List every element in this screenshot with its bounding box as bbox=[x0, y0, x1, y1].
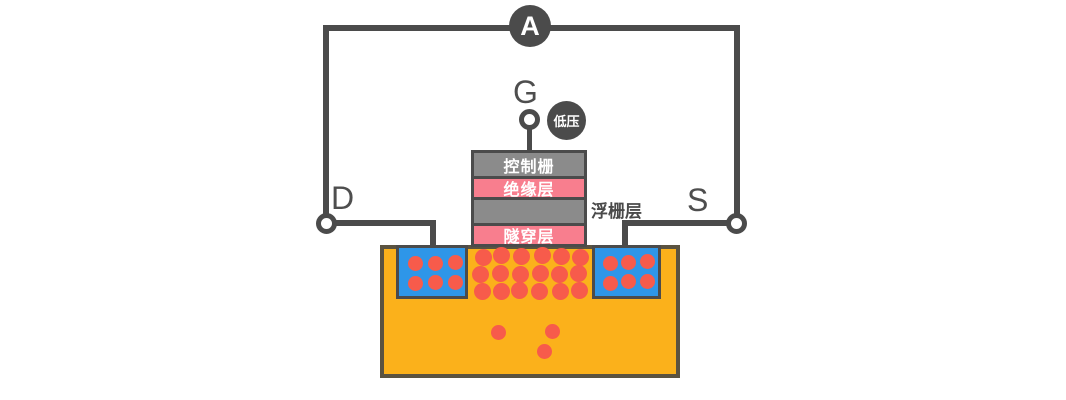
channel-electron bbox=[511, 282, 528, 299]
channel-electron bbox=[474, 283, 491, 300]
source-region-electron bbox=[603, 276, 618, 291]
channel-electron bbox=[553, 248, 570, 265]
channel-electron bbox=[571, 282, 588, 299]
source-region-electron bbox=[640, 254, 655, 269]
channel-electron bbox=[570, 265, 587, 282]
substrate-electron bbox=[491, 325, 506, 340]
channel-electron bbox=[492, 265, 509, 282]
drain-region bbox=[396, 245, 468, 299]
floating-gate-layer bbox=[474, 200, 584, 223]
substrate-electron bbox=[537, 344, 552, 359]
channel-electron bbox=[552, 283, 569, 300]
channel-electron bbox=[512, 266, 529, 283]
flash-memory-diagram: 控制栅 绝缘层 隧穿层 浮栅层 A 低压 G D S bbox=[0, 0, 1066, 400]
tunnel-layer: 隧穿层 bbox=[474, 226, 584, 244]
channel-electron bbox=[532, 265, 549, 282]
drain-region-electron bbox=[448, 275, 463, 290]
source-region-electron bbox=[603, 256, 618, 271]
insulation-layer: 绝缘层 bbox=[474, 179, 584, 197]
channel-electron bbox=[472, 266, 489, 283]
gate-terminal-label: G bbox=[513, 76, 538, 108]
drain-region-electron bbox=[408, 276, 423, 291]
channel-electron bbox=[475, 249, 492, 266]
channel-electron bbox=[534, 247, 551, 264]
ammeter: A bbox=[509, 5, 551, 47]
drain-region-electron bbox=[428, 256, 443, 271]
source-region-electron bbox=[621, 255, 636, 270]
low-voltage-badge-label: 低压 bbox=[553, 111, 579, 130]
drain-region-electron bbox=[428, 275, 443, 290]
gate-terminal-node bbox=[519, 109, 540, 130]
wire-left-vertical bbox=[323, 25, 329, 214]
wire-drain-horizontal bbox=[331, 220, 435, 226]
drain-terminal-label: D bbox=[331, 182, 354, 214]
source-region-electron bbox=[640, 274, 655, 289]
source-region-electron bbox=[621, 274, 636, 289]
substrate-electron bbox=[545, 324, 560, 339]
source-terminal-label: S bbox=[687, 184, 708, 216]
low-voltage-badge: 低压 bbox=[547, 101, 586, 140]
source-terminal-node bbox=[726, 213, 747, 234]
channel-electron bbox=[531, 283, 548, 300]
source-region bbox=[592, 245, 661, 299]
wire-right-vertical bbox=[734, 25, 740, 214]
channel-electron bbox=[493, 283, 510, 300]
channel-electron bbox=[493, 247, 510, 264]
ammeter-label: A bbox=[520, 11, 540, 42]
drain-terminal-node bbox=[316, 213, 337, 234]
channel-electron bbox=[572, 249, 589, 266]
wire-source-down bbox=[622, 220, 628, 248]
floating-gate-label: 浮栅层 bbox=[591, 203, 642, 220]
channel-electron bbox=[513, 248, 530, 265]
drain-region-electron bbox=[408, 256, 423, 271]
drain-region-electron bbox=[448, 255, 463, 270]
channel-electron bbox=[551, 266, 568, 283]
wire-drain-down bbox=[430, 220, 436, 248]
control-gate-layer: 控制栅 bbox=[474, 153, 584, 176]
gate-stack: 控制栅 绝缘层 隧穿层 bbox=[471, 150, 587, 247]
